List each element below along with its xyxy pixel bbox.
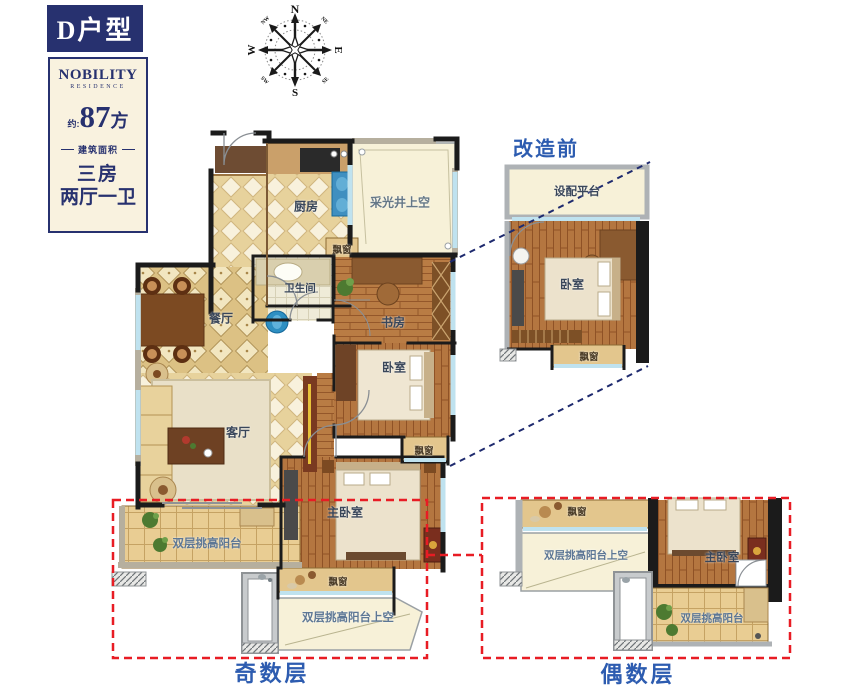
layout-rooms: 三房	[77, 164, 119, 186]
area-row: 约: 87 方	[68, 103, 129, 133]
brand-subtitle: RESIDENCE	[70, 83, 126, 91]
compass-s: S	[292, 87, 298, 98]
label-bathroom: 卫生间	[284, 281, 316, 296]
compass-rose: N S E W NW NE SW SE	[247, 2, 343, 98]
area-number: 87	[80, 103, 111, 131]
area-caption-row: 建筑面积	[61, 143, 135, 156]
compass-w: W	[247, 45, 258, 56]
label-before-platform: 设配平台	[554, 183, 600, 199]
label-even-balcony-above: 双层挑高阳台上空	[544, 548, 628, 563]
compass-ne: NE	[319, 16, 329, 26]
label-bay-window-bottom: 飘窗	[328, 574, 347, 588]
divider-line-right	[122, 149, 135, 150]
area-unit: 方	[111, 107, 129, 133]
inset-even-plan	[500, 498, 782, 650]
label-light-well: 采光井上空	[370, 194, 430, 211]
unit-type-badge: D户型	[47, 5, 143, 52]
area-caption: 建筑面积	[78, 143, 118, 156]
floorplan-page: N S E W NW NE SW SE D户型 NOBILITY RESIDEN…	[0, 0, 851, 693]
area-prefix: 约:	[68, 117, 80, 130]
label-before-bay-window: 飘窗	[579, 349, 598, 363]
caption-odd-floors: 奇数层	[234, 656, 309, 688]
brand-name: NOBILITY	[58, 68, 137, 83]
divider-line-left	[61, 149, 74, 150]
inset-before-title: 改造前	[513, 133, 579, 162]
compass-sw: SW	[259, 76, 270, 87]
label-before-bedroom: 卧室	[560, 276, 584, 293]
label-balcony-above: 双层挑高阳台上空	[302, 609, 394, 625]
label-kitchen: 厨房	[294, 198, 318, 215]
caption-even-floors: 偶数层	[600, 657, 675, 689]
compass-n: N	[291, 2, 300, 16]
compass-se: SE	[321, 76, 330, 85]
label-living: 客厅	[226, 424, 250, 441]
label-even-bay-window: 飘窗	[567, 504, 586, 518]
label-balcony: 双层挑高阳台	[173, 535, 242, 551]
compass-e: E	[332, 46, 343, 53]
layout-halls: 两厅一卫	[60, 186, 136, 210]
label-bay-window-right: 飘窗	[414, 443, 433, 457]
unit-type-label: D户型	[57, 10, 134, 47]
label-even-master-bedroom: 主卧室	[705, 549, 740, 565]
label-bay-window-top: 飘窗	[332, 242, 351, 256]
label-bedroom: 卧室	[382, 359, 406, 376]
label-dining: 餐厅	[209, 310, 233, 327]
unit-info-panel: NOBILITY RESIDENCE 约: 87 方 建筑面积 三房 两厅一卫	[48, 57, 148, 233]
label-even-balcony: 双层挑高阳台	[681, 611, 744, 626]
label-study: 书房	[381, 314, 405, 331]
label-master-bedroom: 主卧室	[327, 504, 363, 521]
